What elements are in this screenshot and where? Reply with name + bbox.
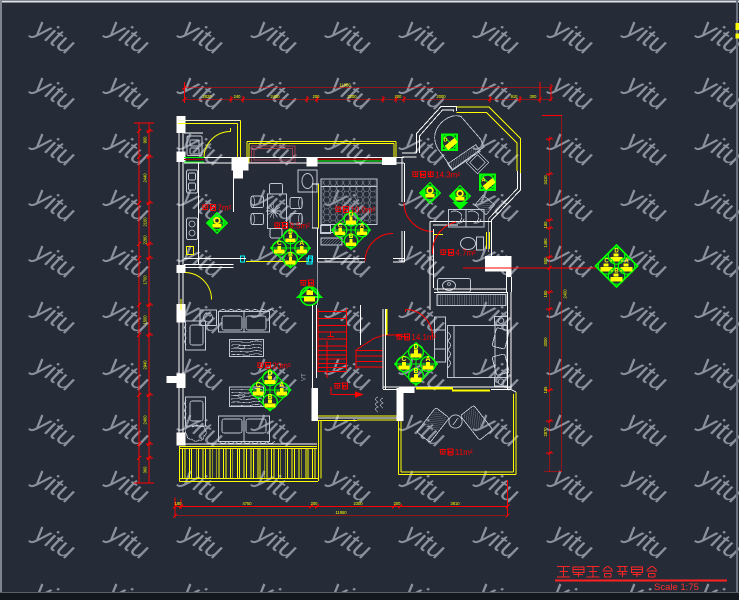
svg-text:185: 185	[543, 386, 548, 394]
svg-text:4750: 4750	[242, 501, 252, 506]
svg-text:14.1m²: 14.1m²	[411, 333, 436, 342]
svg-text:2460: 2460	[143, 415, 148, 425]
svg-text:B: B	[349, 233, 354, 240]
svg-text:180: 180	[543, 221, 548, 229]
svg-text:1480: 1480	[543, 238, 548, 248]
svg-text:240: 240	[234, 94, 242, 99]
svg-text:11m²: 11m²	[455, 448, 473, 457]
svg-text:300: 300	[530, 94, 538, 99]
svg-text:C: C	[256, 382, 261, 389]
svg-text:2280: 2280	[143, 235, 148, 245]
svg-text:A: A	[482, 178, 486, 184]
svg-text:360: 360	[143, 466, 148, 474]
svg-text:2400: 2400	[270, 94, 280, 99]
svg-text:200: 200	[395, 94, 403, 99]
svg-text:2820: 2820	[202, 94, 212, 99]
svg-text:4.7m²: 4.7m²	[455, 249, 476, 258]
svg-text:C: C	[401, 356, 406, 363]
svg-text:2870: 2870	[543, 427, 548, 437]
svg-text:2100: 2100	[143, 217, 148, 227]
svg-text:2940: 2940	[143, 360, 148, 370]
svg-text:7m²: 7m²	[217, 204, 231, 213]
svg-text:3810: 3810	[450, 501, 460, 506]
svg-text:D: D	[413, 344, 418, 351]
svg-text:11950: 11950	[335, 510, 347, 515]
svg-text:900: 900	[143, 136, 148, 144]
svg-text:A: A	[299, 240, 304, 247]
svg-text:200: 200	[313, 94, 321, 99]
svg-text:14.3m²: 14.3m²	[435, 171, 460, 180]
svg-text:B: B	[288, 251, 293, 258]
svg-text:D: D	[268, 370, 273, 377]
svg-text:910: 910	[511, 94, 519, 99]
svg-text:A: A	[426, 356, 431, 363]
svg-text:2000: 2000	[436, 94, 446, 99]
svg-text:C: C	[277, 240, 282, 247]
svg-text:9.5m²: 9.5m²	[289, 222, 310, 231]
svg-text:200: 200	[394, 501, 402, 506]
svg-text:20m²: 20m²	[272, 362, 291, 371]
svg-text:2300: 2300	[353, 501, 363, 506]
svg-text:2400: 2400	[563, 289, 568, 299]
svg-text:200: 200	[311, 501, 319, 506]
svg-text:D: D	[444, 138, 448, 144]
svg-text:1500: 1500	[143, 315, 148, 325]
svg-text:C: C	[604, 259, 609, 265]
svg-text:D: D	[307, 290, 312, 297]
svg-text:11950: 11950	[339, 83, 351, 88]
svg-text:B: B	[413, 368, 418, 375]
svg-text:3410: 3410	[543, 175, 548, 185]
svg-text:600: 600	[543, 257, 548, 265]
svg-text:10.0m²: 10.0m²	[350, 206, 375, 215]
svg-text:Scale 1:75: Scale 1:75	[654, 582, 699, 593]
svg-text:180: 180	[175, 501, 183, 506]
svg-text:2440: 2440	[143, 173, 148, 183]
svg-text:A: A	[360, 222, 365, 229]
svg-text:A: A	[279, 382, 284, 389]
svg-text:3000: 3000	[543, 337, 548, 347]
svg-text:B: B	[614, 269, 619, 275]
svg-text:VT: VT	[302, 373, 308, 381]
svg-text:180: 180	[543, 290, 548, 298]
svg-text:B: B	[268, 394, 273, 401]
svg-text:1700: 1700	[143, 275, 148, 285]
svg-text:C: C	[338, 222, 343, 229]
svg-text:2200: 2200	[347, 94, 357, 99]
svg-text:A: A	[624, 259, 629, 265]
svg-text:D: D	[614, 249, 619, 255]
